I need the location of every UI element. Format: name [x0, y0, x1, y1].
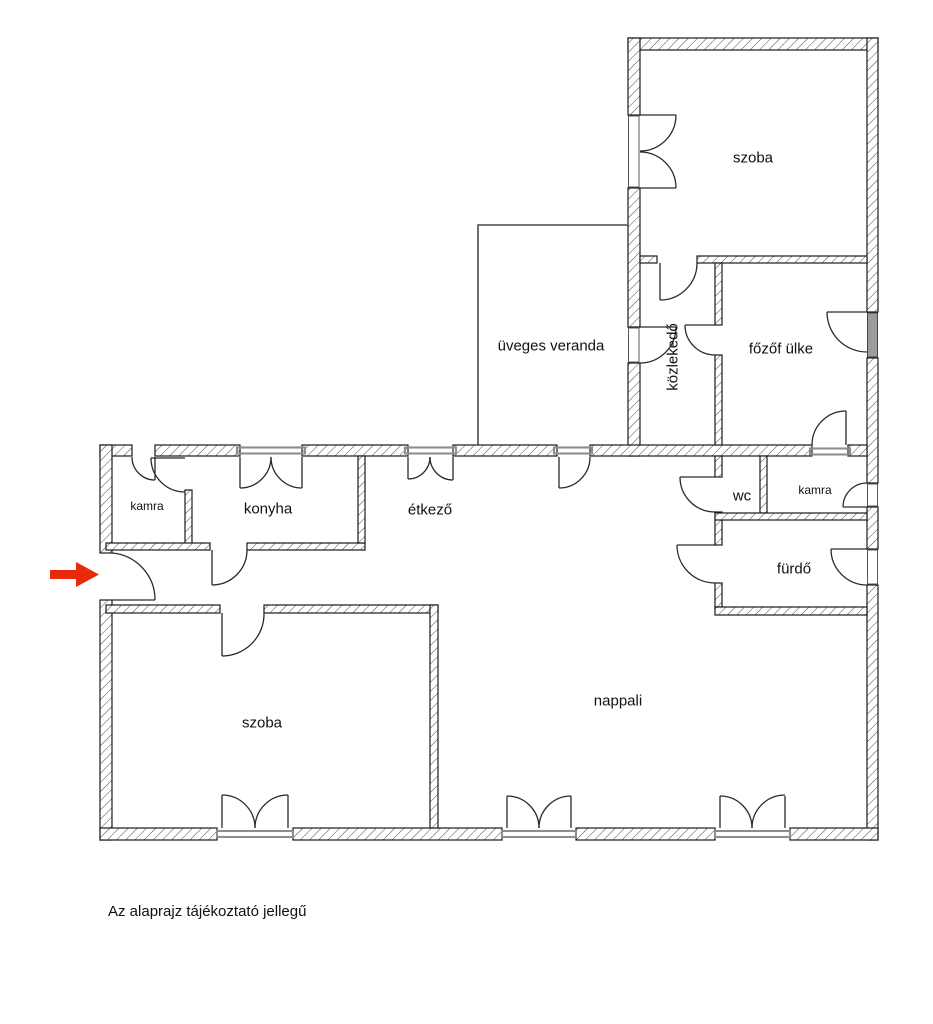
room-label-kamra-right: kamra: [798, 484, 831, 496]
floor-plan-canvas: szoba üveges veranda közlekedő főzőf ülk…: [0, 0, 933, 1024]
floor-plan-disclaimer: Az alaprajz tájékoztató jellegű: [108, 903, 306, 920]
kamra-right-door-frame: [868, 484, 878, 506]
room-label-nappali: nappali: [594, 694, 642, 709]
room-label-etkezo: étkező: [408, 503, 452, 518]
veranda-outline: [478, 225, 628, 445]
room-label-kozlekedo: közlekedő: [666, 323, 681, 391]
room-label-uveges-veranda: üveges veranda: [498, 339, 605, 354]
room-label-szoba-top: szoba: [733, 151, 773, 166]
room-label-furdo: fürdő: [777, 562, 811, 577]
szoba-top-window-frame: [629, 116, 640, 187]
room-label-kamra-left: kamra: [130, 500, 163, 512]
fozofulke-window-glass: [868, 313, 878, 357]
room-label-konyha: konyha: [244, 502, 292, 517]
entrance-arrow-icon: [50, 562, 99, 587]
doors-layer: [112, 115, 867, 828]
veranda-door-frame: [629, 328, 640, 362]
room-label-wc: wc: [733, 489, 751, 504]
room-label-fozofulke: főzőf ülke: [749, 342, 813, 357]
entrance-door: [112, 553, 155, 600]
window-sills-layer: [217, 448, 850, 838]
furdo-window-frame: [868, 550, 878, 584]
room-label-szoba-bottom: szoba: [242, 716, 282, 731]
